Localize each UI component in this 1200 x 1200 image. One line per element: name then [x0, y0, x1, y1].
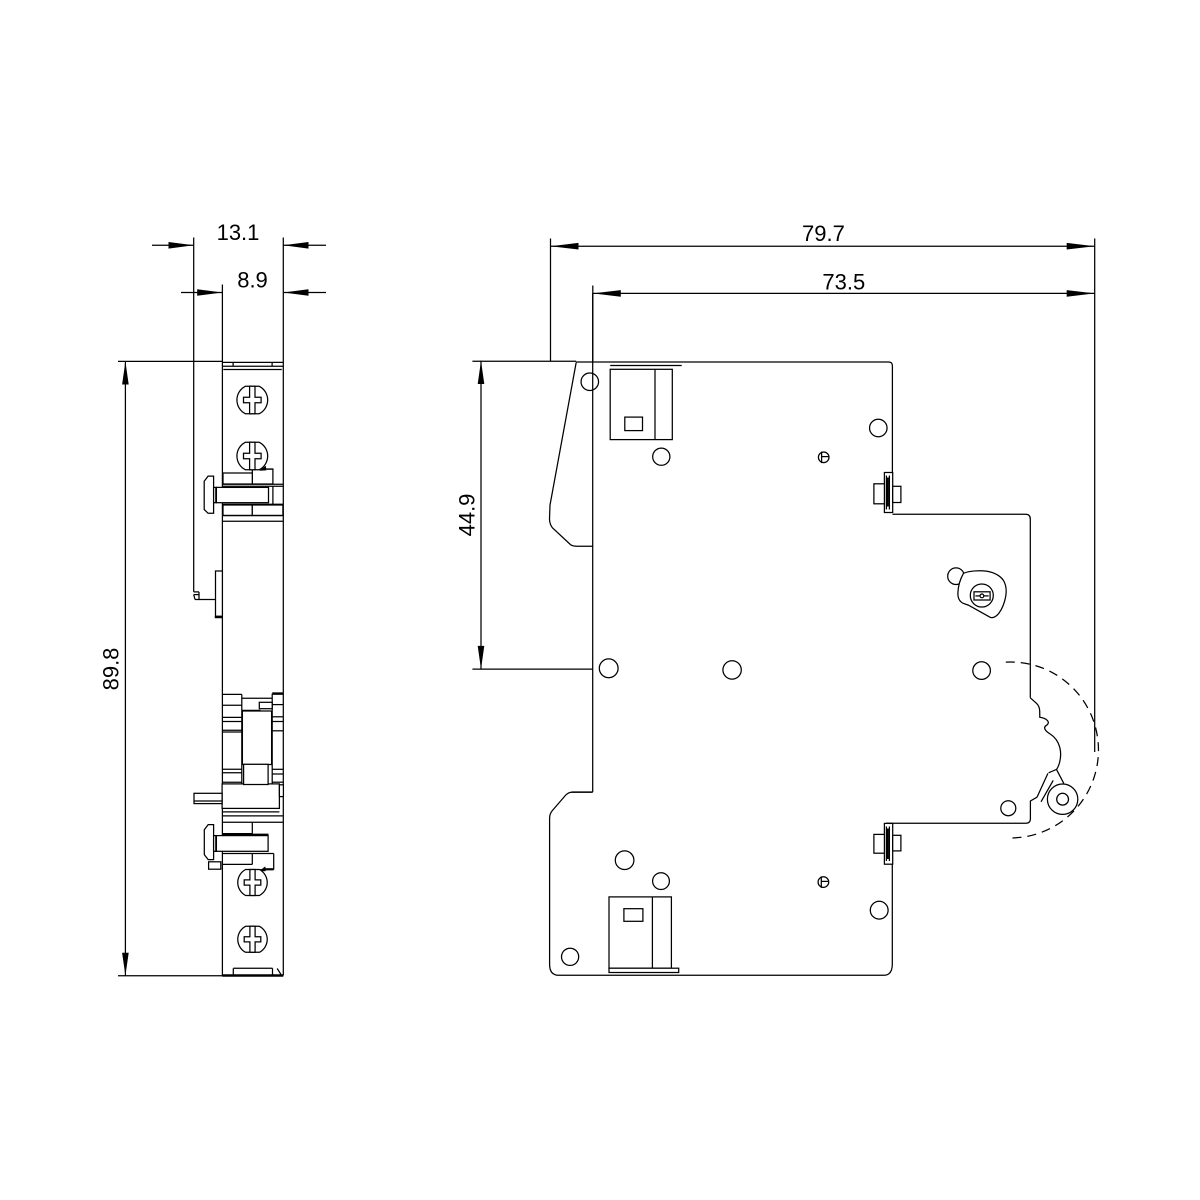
svg-text:13.1: 13.1	[217, 220, 260, 245]
svg-text:44.9: 44.9	[455, 494, 480, 537]
svg-text:8.9: 8.9	[237, 268, 268, 293]
svg-text:89.8: 89.8	[99, 648, 124, 691]
svg-text:79.7: 79.7	[802, 221, 845, 246]
svg-text:73.5: 73.5	[822, 270, 865, 295]
